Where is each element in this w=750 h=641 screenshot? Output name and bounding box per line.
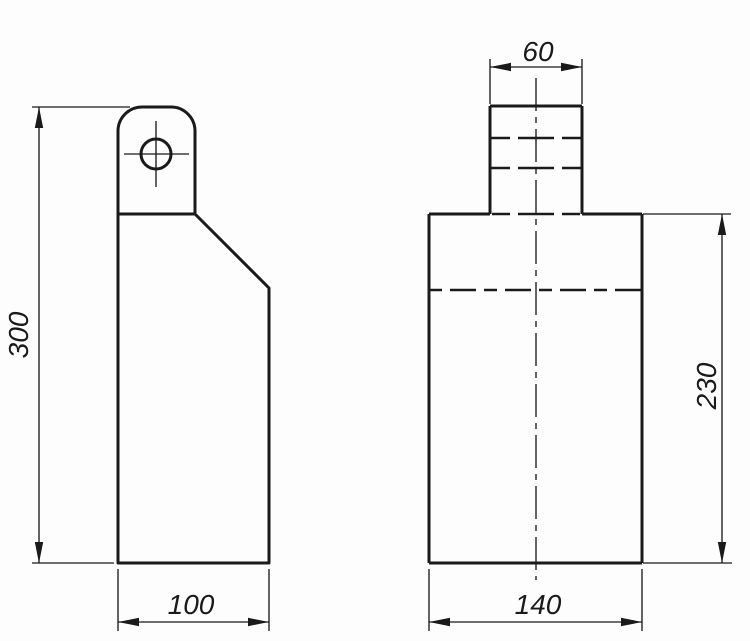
- dimension-label-140: 140: [515, 589, 562, 620]
- dimension-arrowhead: [248, 618, 269, 626]
- dimension-label-300: 300: [3, 311, 34, 358]
- dimension-label-60: 60: [522, 36, 554, 67]
- dimension-arrowhead: [718, 542, 726, 563]
- technical-drawing: 30010060230140: [0, 0, 750, 641]
- dimension-arrowhead: [429, 618, 450, 626]
- dimension-arrowhead: [35, 542, 43, 563]
- dimension-label-100: 100: [168, 589, 215, 620]
- dimension-label-230: 230: [691, 362, 722, 410]
- dimension-arrowhead: [490, 63, 511, 71]
- dimension-arrowhead: [118, 618, 139, 626]
- dimension-arrowhead: [621, 618, 642, 626]
- drawing-sheet: 30010060230140: [0, 0, 750, 641]
- dimension-arrowhead: [561, 63, 582, 71]
- dimension-arrowhead: [718, 214, 726, 235]
- side-view-outline: [118, 107, 269, 563]
- dimension-arrowhead: [35, 107, 43, 128]
